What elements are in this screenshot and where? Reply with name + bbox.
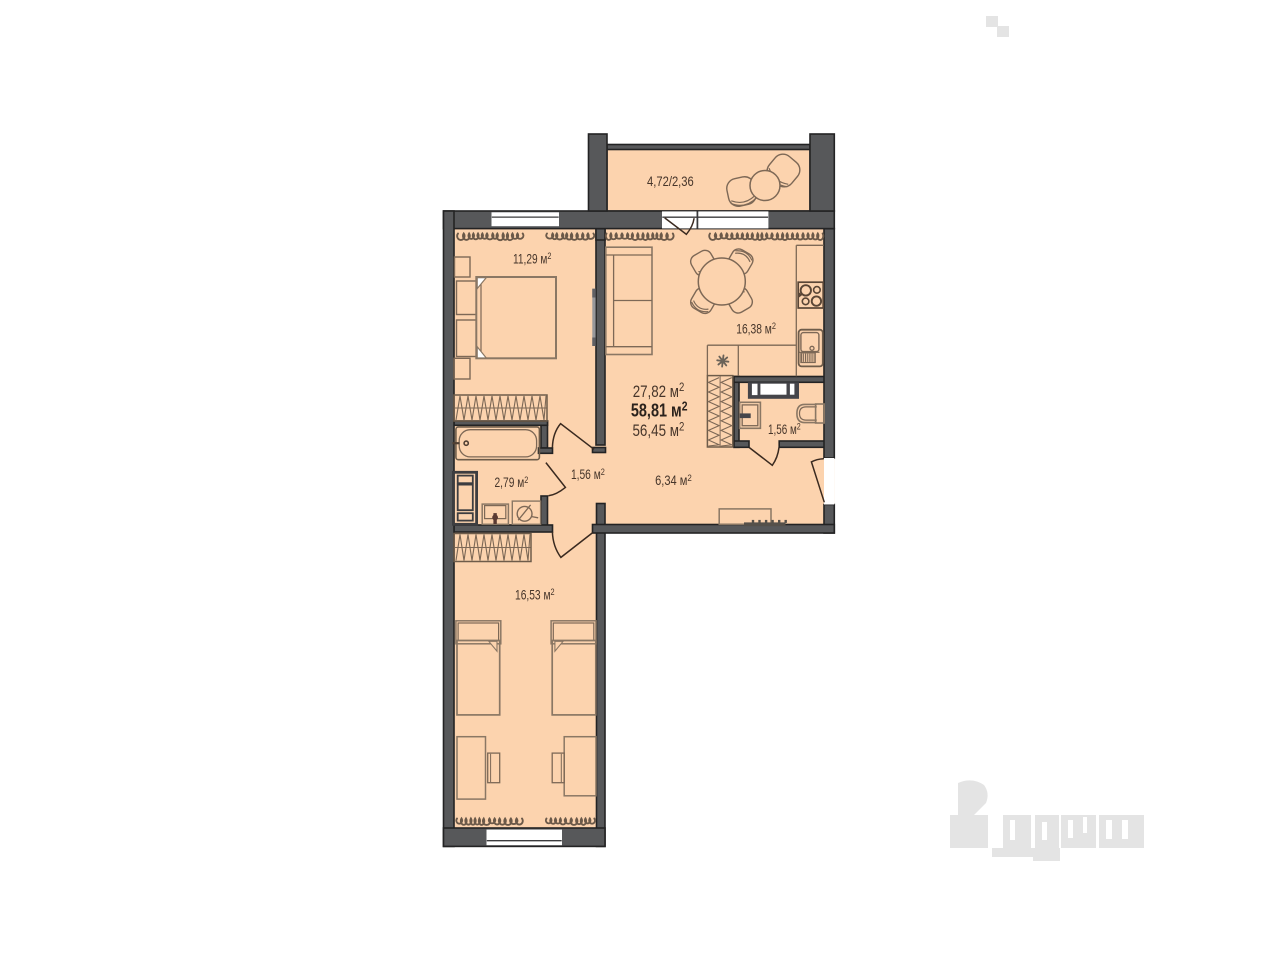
svg-text:6,34 м2: 6,34 м2 [655,473,692,488]
svg-text:11,29 м2: 11,29 м2 [513,251,551,266]
svg-text:56,45 м2: 56,45 м2 [632,420,684,441]
svg-text:2,79 м2: 2,79 м2 [495,475,529,490]
svg-text:27,82 м2: 27,82 м2 [633,380,685,401]
svg-text:1,56 м2: 1,56 м2 [571,467,605,482]
svg-text:16,53 м2: 16,53 м2 [515,587,555,602]
svg-text:1,56 м2: 1,56 м2 [768,421,801,436]
svg-text:16,38 м2: 16,38 м2 [736,321,776,336]
svg-text:4,72/2,36: 4,72/2,36 [647,174,694,189]
svg-text:58,81 м2: 58,81 м2 [631,399,688,421]
